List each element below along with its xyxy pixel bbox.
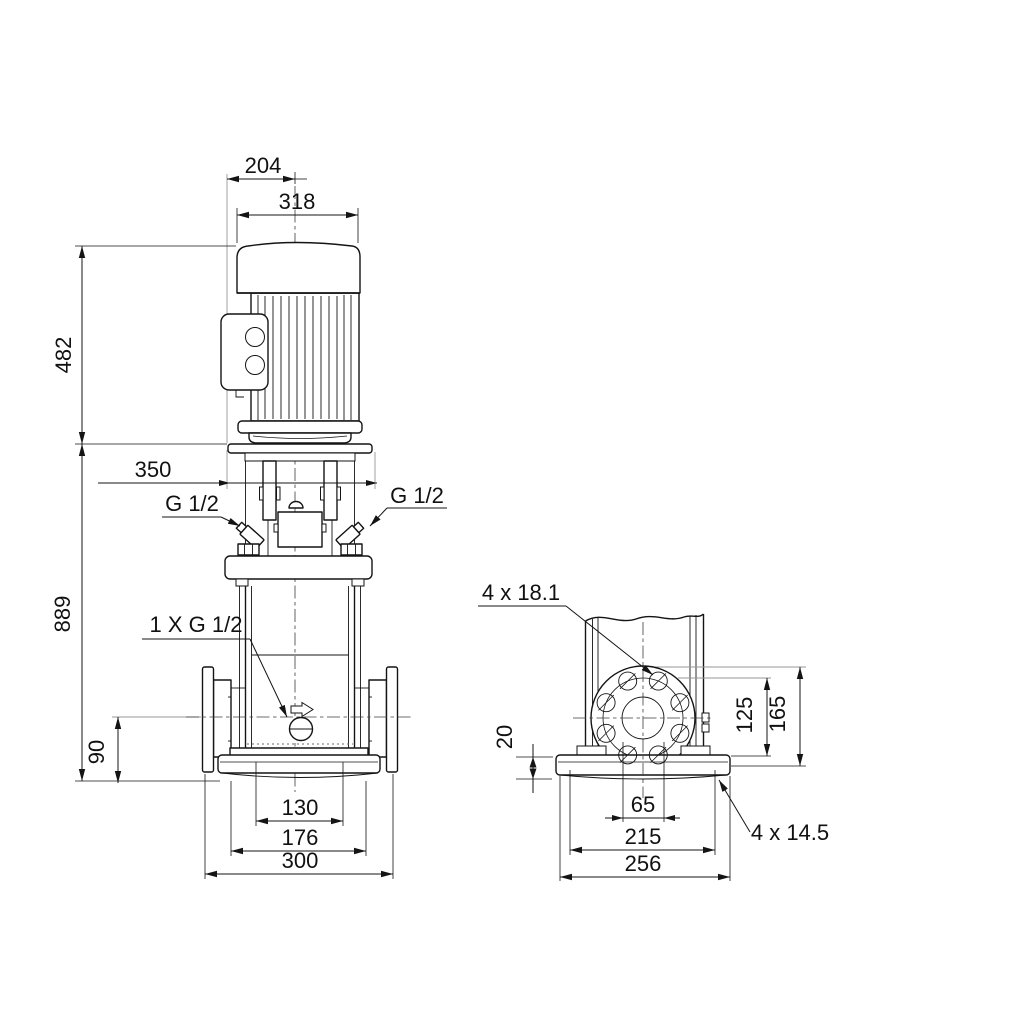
staybolt-nut-left [238, 544, 259, 555]
base-holes-text: 4 x 14.5 [751, 820, 829, 845]
pump-head [225, 556, 372, 586]
dim-215: 215 [570, 824, 715, 850]
drain-plug-side [702, 713, 709, 722]
dim-256: 256 [560, 851, 730, 877]
dim-20-label: 20 [492, 725, 517, 749]
g12-left-text: G 1/2 [165, 491, 219, 516]
flange-holes-text: 4 x 18.1 [482, 580, 560, 605]
dim-165-label: 165 [765, 696, 790, 733]
dim-318-label: 318 [279, 189, 316, 214]
terminal-box [221, 314, 268, 397]
front-view: 204 318 482 350 889 90 G 1/2 [50, 153, 447, 879]
dim-482: 482 [51, 246, 82, 444]
motor-stool [228, 444, 372, 556]
dim-130: 130 [256, 795, 343, 821]
label-g12-left: G 1/2 [162, 491, 240, 526]
pump-dimensional-drawing: 204 318 482 350 889 90 G 1/2 [0, 0, 1024, 1024]
dim-256-label: 256 [625, 851, 662, 876]
dim-350-label: 350 [135, 457, 172, 482]
stool-inner-plate [245, 453, 355, 461]
staybolt-nut-right [341, 544, 362, 555]
dim-889: 889 [50, 444, 82, 781]
dim-90-label: 90 [84, 740, 109, 764]
dim-300-label: 300 [282, 848, 319, 873]
dim-176-label: 176 [282, 825, 319, 850]
g12-right-text: G 1/2 [390, 483, 444, 508]
coupling-block [278, 512, 322, 547]
base-plate-front [218, 748, 380, 778]
dim-482-label: 482 [51, 337, 76, 374]
cable-entry-hole [246, 356, 265, 375]
coupling-guard-right [324, 461, 337, 520]
pump-dimensional-drawing-page: 204 318 482 350 889 90 G 1/2 [0, 0, 1024, 1024]
label-g12-right: G 1/2 [370, 483, 447, 526]
shaft-pin [289, 502, 303, 509]
dim-20: 20 [492, 725, 553, 793]
cable-entry-hole [246, 328, 265, 347]
dim-318: 318 [237, 189, 358, 215]
label-base-holes: 4 x 14.5 [719, 780, 829, 845]
coupling-guard-left [263, 461, 276, 520]
dim-65-label: 65 [631, 792, 655, 817]
fan-cover [237, 243, 360, 294]
stool-top-plate [228, 444, 372, 453]
motor [221, 243, 362, 444]
dim-90: 90 [84, 717, 118, 783]
flow-arrow-icon [291, 703, 313, 717]
dim-65: 65 [605, 792, 680, 821]
dim-204-label: 204 [245, 153, 282, 178]
motor-foot-flange [238, 421, 362, 433]
dim-300: 300 [205, 848, 393, 874]
dim-215-label: 215 [625, 824, 662, 849]
drain-port-text: 1 X G 1/2 [150, 612, 243, 637]
motor-adapter [249, 433, 351, 443]
label-flange-holes: 4 x 18.1 [478, 580, 653, 675]
drain-plug [290, 703, 314, 741]
dim-889-label: 889 [50, 596, 75, 633]
dim-125-label: 125 [732, 697, 757, 734]
side-view: 4 x 18.1 20 125 165 [478, 580, 829, 881]
break-line [586, 614, 704, 621]
dim-130-label: 130 [282, 795, 319, 820]
